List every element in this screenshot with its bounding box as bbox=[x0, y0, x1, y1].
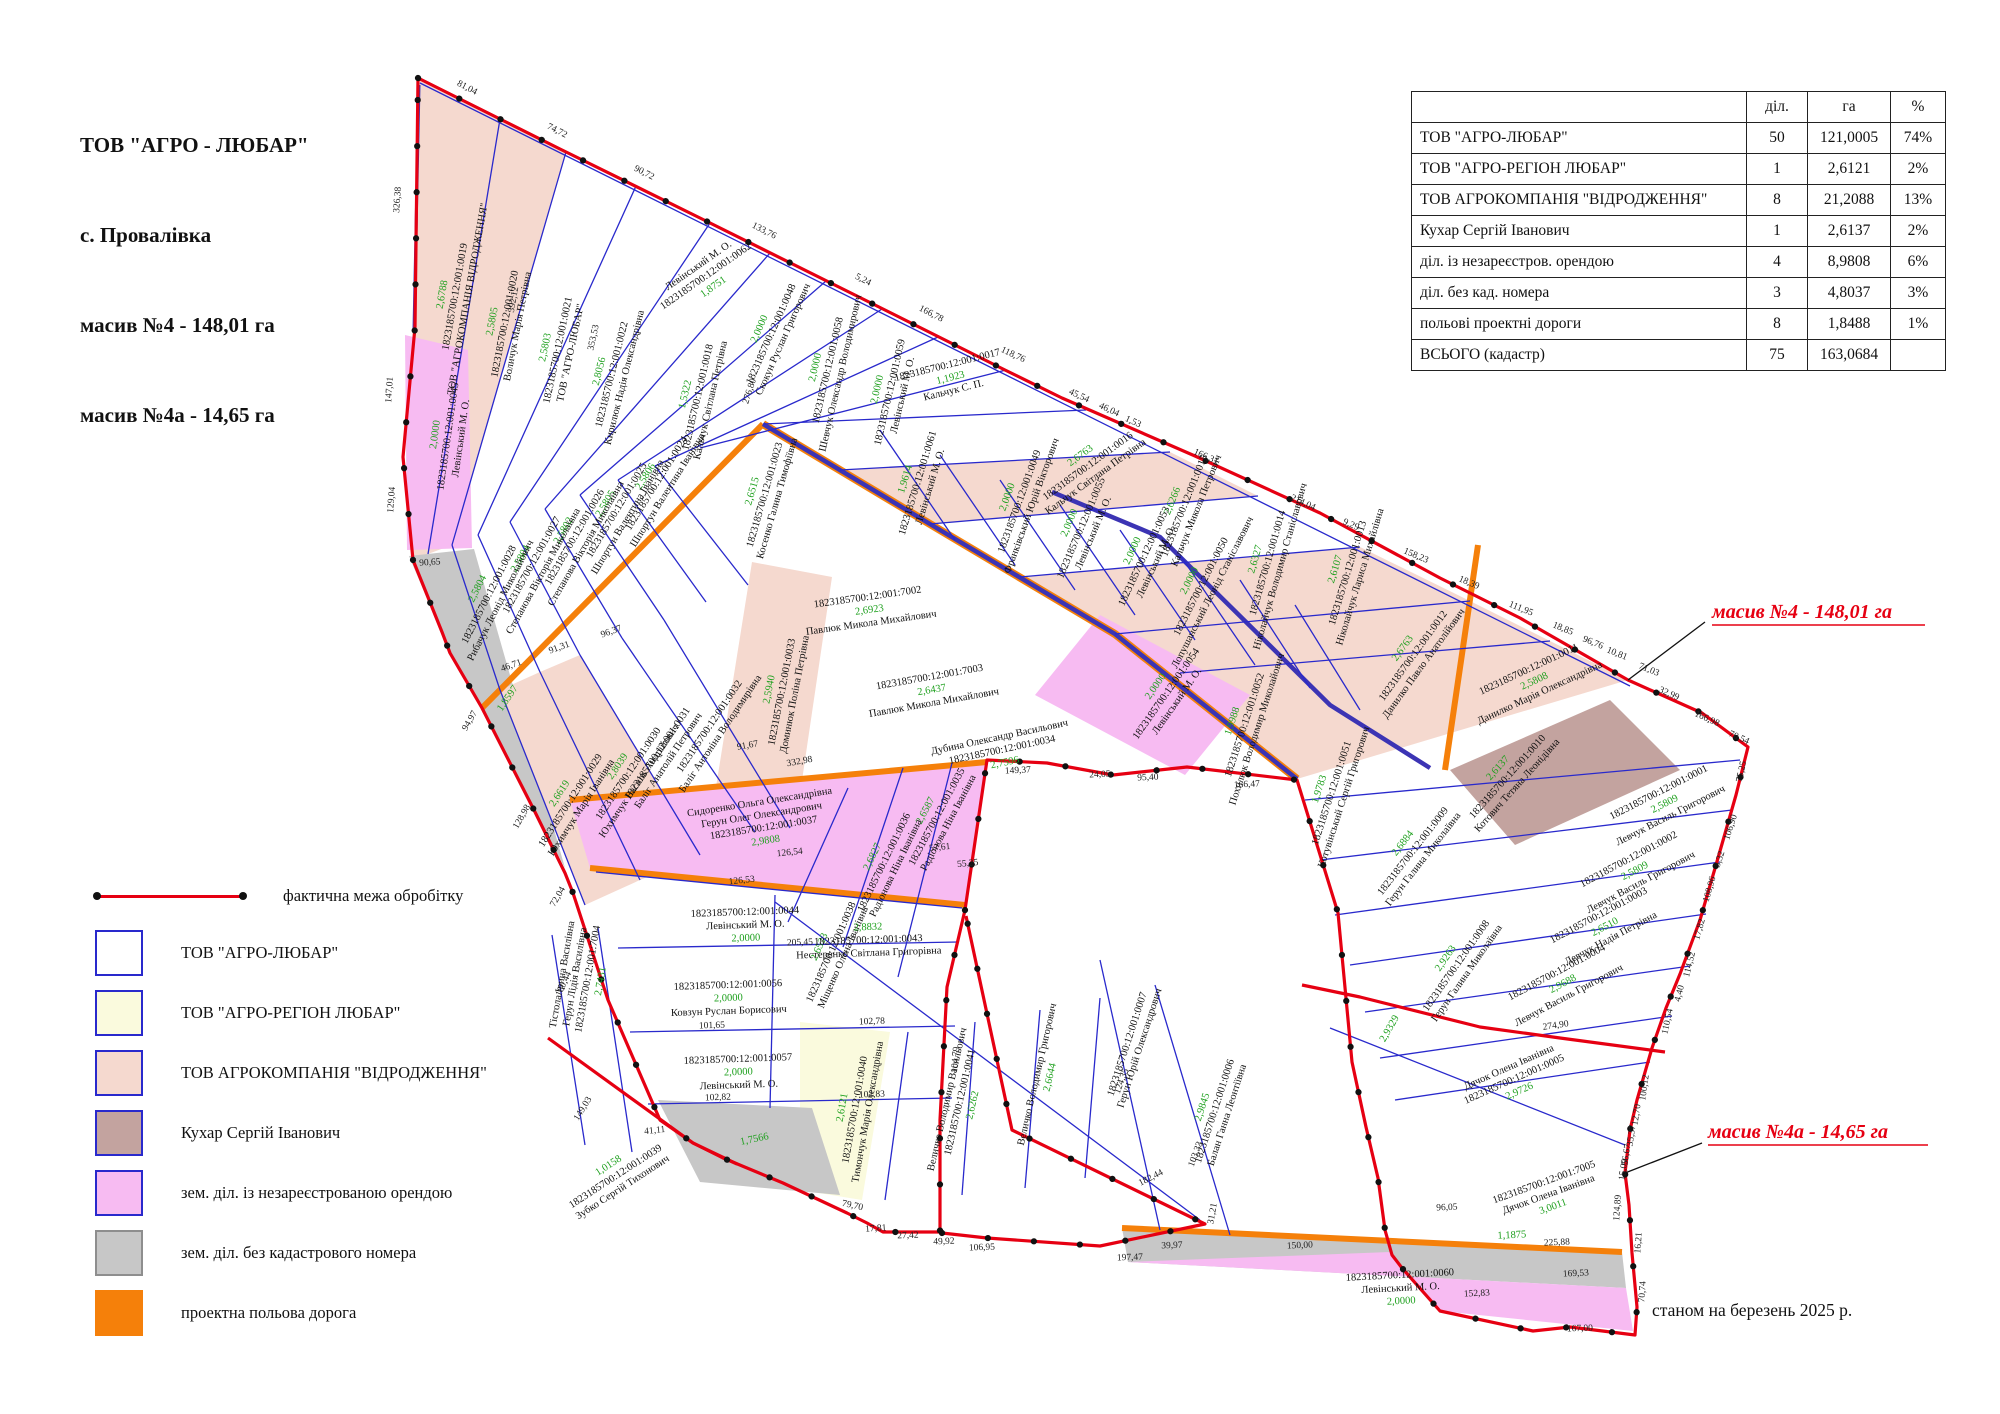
svg-text:74,72: 74,72 bbox=[545, 122, 569, 141]
leader-line-massif4a bbox=[1625, 1143, 1702, 1173]
parcel-owner-label: Левінський М. О. bbox=[699, 1079, 778, 1093]
svg-text:104,79: 104,79 bbox=[950, 1046, 962, 1073]
svg-text:32,99: 32,99 bbox=[1657, 685, 1681, 703]
svg-text:102,83: 102,83 bbox=[859, 1090, 886, 1101]
svg-text:326,38: 326,38 bbox=[392, 186, 404, 213]
svg-text:94,97: 94,97 bbox=[461, 709, 480, 733]
svg-text:17,82: 17,82 bbox=[1692, 918, 1708, 942]
svg-text:27,42: 27,42 bbox=[897, 1231, 919, 1242]
svg-text:35,37: 35,37 bbox=[1626, 1124, 1639, 1147]
massif4a-annotation: масив №4а - 14,65 га bbox=[1707, 1121, 1888, 1143]
parcel-area-label: 1,1875 bbox=[1497, 1229, 1526, 1241]
parcel-owner-label: Левінський М. О. bbox=[706, 919, 785, 933]
svg-text:95,40: 95,40 bbox=[1137, 772, 1159, 783]
parcel-area-label: 2,0000 bbox=[714, 992, 743, 1004]
svg-text:169,53: 169,53 bbox=[1563, 1268, 1590, 1279]
cadastral-map: масив №4 - 148,01 га масив №4а - 14,65 г… bbox=[0, 0, 2000, 1414]
svg-text:75,25: 75,25 bbox=[1735, 760, 1749, 783]
boundary-dots bbox=[942, 916, 1205, 1246]
svg-text:149,37: 149,37 bbox=[1005, 765, 1032, 776]
parcel-area-label: 2,8832 bbox=[853, 922, 882, 934]
svg-text:96,76: 96,76 bbox=[1581, 635, 1605, 652]
svg-text:129,04: 129,04 bbox=[386, 486, 398, 513]
svg-text:101,65: 101,65 bbox=[699, 1021, 726, 1032]
svg-text:10,81: 10,81 bbox=[1605, 646, 1629, 663]
parcel-area-label: 2,0000 bbox=[731, 932, 760, 944]
svg-text:118,76: 118,76 bbox=[999, 345, 1027, 365]
svg-text:166,98: 166,98 bbox=[1693, 709, 1721, 729]
svg-text:71,03: 71,03 bbox=[1637, 662, 1661, 679]
parcel-id-label: 1823185700:12:001:0056 bbox=[673, 978, 782, 993]
massif4-annotation: масив №4 - 148,01 га bbox=[1711, 601, 1892, 623]
svg-text:152,83: 152,83 bbox=[1464, 1288, 1491, 1299]
svg-text:96,37: 96,37 bbox=[600, 624, 624, 641]
parcel-area-label: 2,9329 bbox=[1378, 1013, 1402, 1044]
svg-text:353,53: 353,53 bbox=[586, 324, 601, 352]
parcel-area-label: 2,0000 bbox=[1387, 1295, 1416, 1307]
parcel-owner-label: Ковзун Руслан Борисович bbox=[671, 1004, 788, 1019]
svg-text:17,81: 17,81 bbox=[865, 1223, 887, 1234]
svg-text:81,04: 81,04 bbox=[455, 79, 479, 98]
svg-text:111,95: 111,95 bbox=[1507, 600, 1535, 619]
parcel-id-label: 1823185700:12:001:0057 bbox=[683, 1052, 792, 1067]
parcel-id-label: 1823185700:12:001:0004 bbox=[1506, 942, 1608, 1003]
svg-text:39,97: 39,97 bbox=[1161, 1241, 1183, 1252]
svg-text:147,01: 147,01 bbox=[384, 376, 396, 403]
svg-text:41,11: 41,11 bbox=[644, 1125, 666, 1137]
svg-text:90,72: 90,72 bbox=[632, 164, 656, 183]
svg-text:197,47: 197,47 bbox=[1117, 1253, 1144, 1264]
cadastral-map-sheet: ТОВ "АГРО - ЛЮБАР" с. Провалівка масив №… bbox=[0, 0, 2000, 1414]
svg-text:70,54: 70,54 bbox=[1727, 729, 1751, 747]
svg-text:24,05: 24,05 bbox=[1089, 769, 1111, 780]
svg-text:12,70: 12,70 bbox=[1631, 1103, 1644, 1126]
svg-text:70,74: 70,74 bbox=[1637, 1281, 1648, 1303]
cultivation-boundary-branch bbox=[942, 916, 1205, 1246]
svg-text:166,78: 166,78 bbox=[917, 304, 945, 325]
svg-text:128,98: 128,98 bbox=[511, 803, 533, 831]
parcel-fill-gray2 bbox=[658, 1100, 840, 1195]
svg-text:46,04: 46,04 bbox=[1097, 401, 1121, 419]
svg-text:205,45: 205,45 bbox=[787, 938, 814, 949]
svg-text:72,04: 72,04 bbox=[549, 885, 568, 909]
svg-text:55,25: 55,25 bbox=[957, 858, 980, 870]
svg-text:124,89: 124,89 bbox=[1612, 1194, 1624, 1221]
svg-text:133,76: 133,76 bbox=[750, 221, 778, 242]
svg-text:31,21: 31,21 bbox=[1206, 1202, 1220, 1225]
svg-text:182,44: 182,44 bbox=[1137, 1168, 1165, 1189]
svg-text:96,05: 96,05 bbox=[1436, 1202, 1458, 1213]
svg-text:167,00: 167,00 bbox=[1567, 1324, 1594, 1335]
svg-text:49,92: 49,92 bbox=[933, 1237, 955, 1248]
svg-text:90,65: 90,65 bbox=[419, 557, 441, 568]
svg-text:16,21: 16,21 bbox=[1633, 1232, 1644, 1254]
svg-text:102,82: 102,82 bbox=[705, 1093, 732, 1104]
date-note: станом на березень 2025 р. bbox=[1652, 1300, 1852, 1321]
svg-text:102,78: 102,78 bbox=[859, 1017, 886, 1028]
svg-text:106,90: 106,90 bbox=[1722, 813, 1740, 841]
parcel-id-label: 1823185700:12:001:0003 bbox=[1548, 885, 1649, 946]
svg-text:166,47: 166,47 bbox=[1234, 779, 1261, 790]
svg-text:108,96: 108,96 bbox=[1702, 875, 1719, 903]
svg-text:225,88: 225,88 bbox=[1544, 1237, 1571, 1248]
svg-text:150,00: 150,00 bbox=[1287, 1240, 1314, 1251]
svg-text:18,85: 18,85 bbox=[1551, 621, 1575, 638]
svg-text:3,32: 3,32 bbox=[1713, 850, 1728, 869]
svg-text:100,12: 100,12 bbox=[1638, 1074, 1652, 1102]
parcel-area-label: 2,0000 bbox=[724, 1066, 753, 1078]
svg-text:114,52: 114,52 bbox=[1682, 951, 1698, 979]
parcel-owner-label: Герун Галина Миколаївна bbox=[1384, 810, 1464, 908]
svg-text:15,09: 15,09 bbox=[1618, 1158, 1631, 1181]
svg-text:158,23: 158,23 bbox=[1402, 546, 1430, 566]
svg-text:149,03: 149,03 bbox=[572, 1095, 594, 1123]
svg-text:110,54: 110,54 bbox=[1660, 1008, 1675, 1036]
svg-text:106,95: 106,95 bbox=[969, 1243, 996, 1254]
svg-text:5,24: 5,24 bbox=[853, 272, 873, 289]
